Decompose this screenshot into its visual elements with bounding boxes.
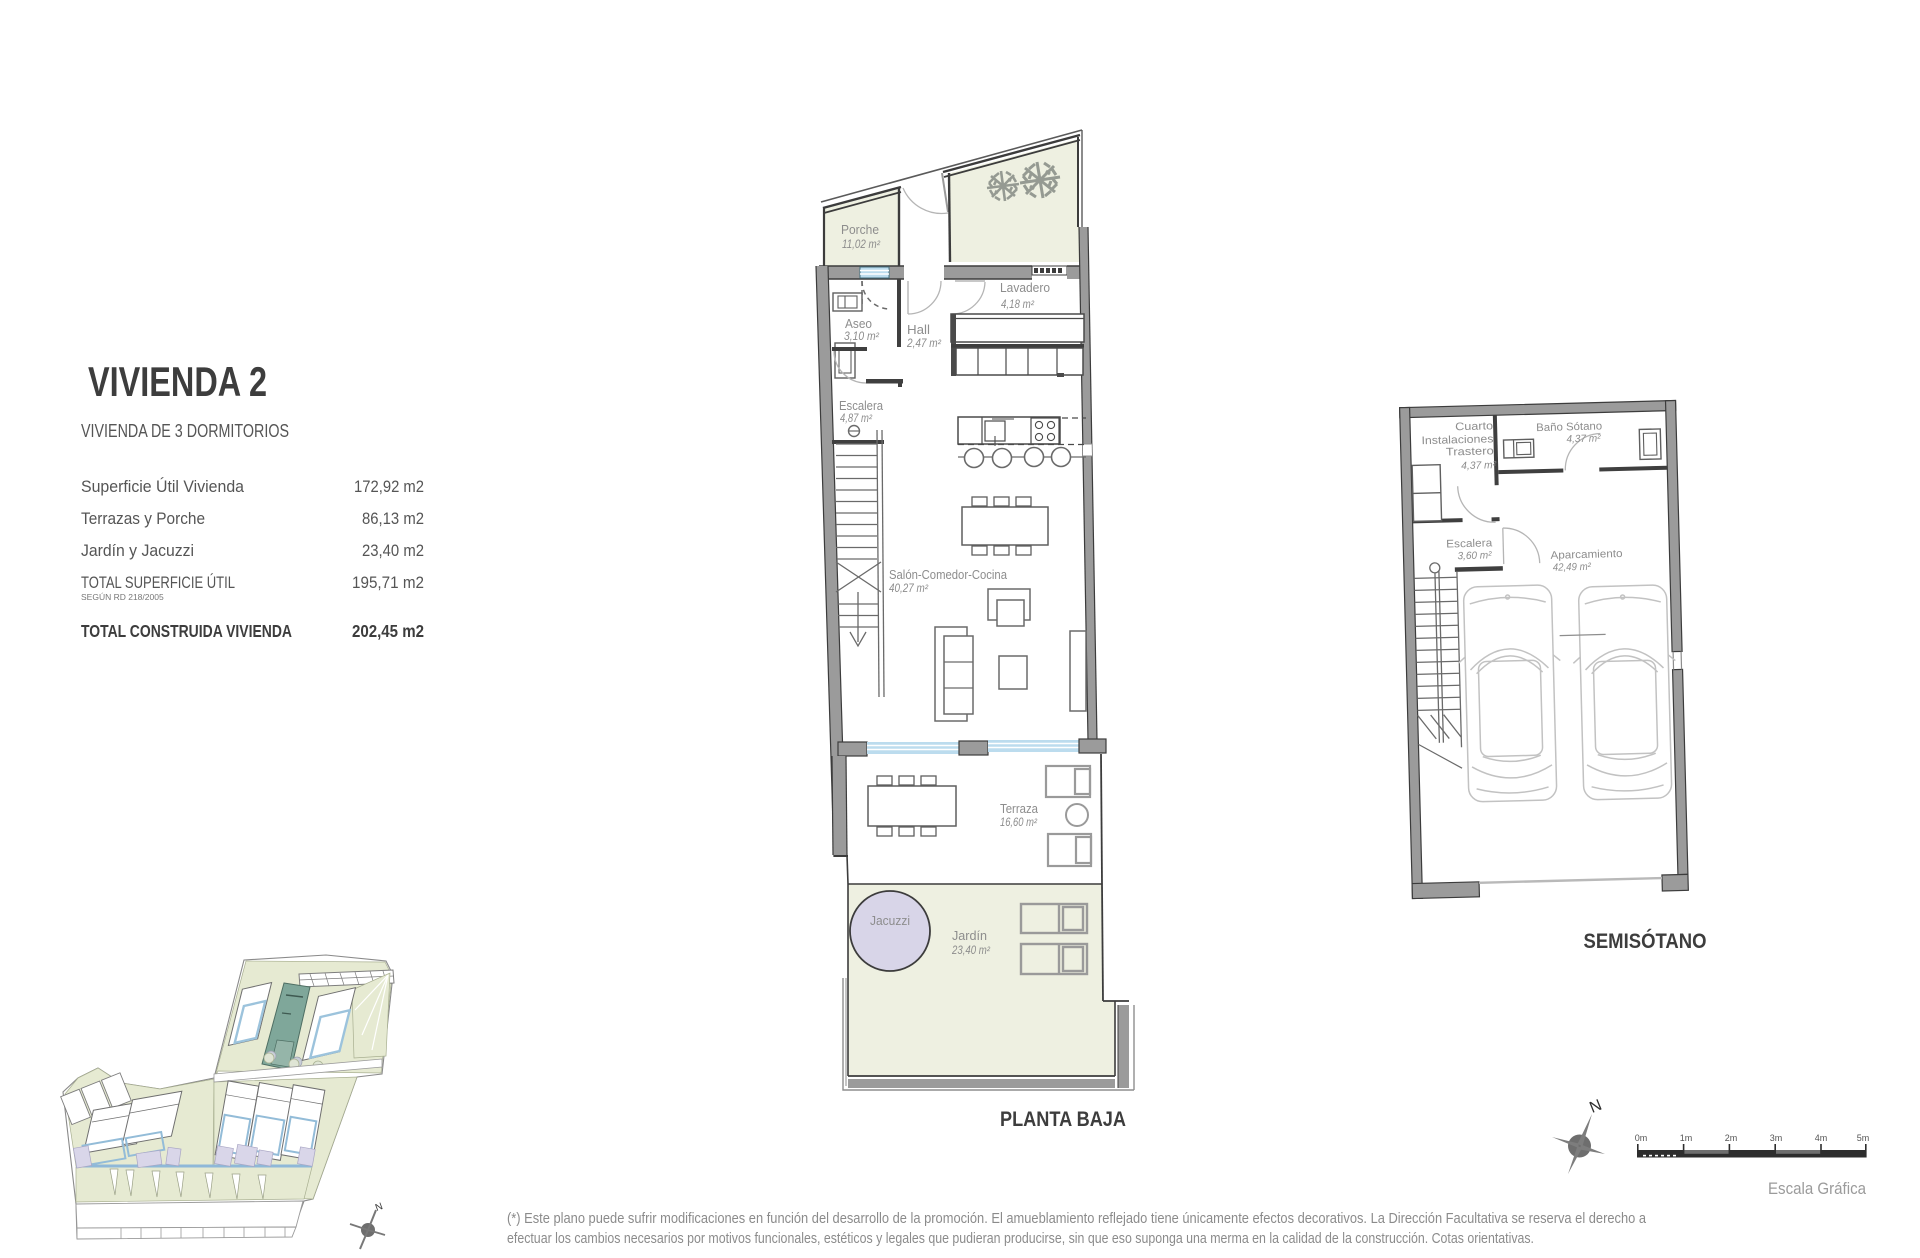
svg-text:Lavadero: Lavadero (1000, 281, 1050, 295)
svg-text:SEGÚN RD 218/2005: SEGÚN RD 218/2005 (81, 592, 164, 602)
svg-text:4,87 m²: 4,87 m² (840, 413, 873, 425)
svg-text:PLANTA BAJA: PLANTA BAJA (1000, 1108, 1126, 1131)
svg-text:Cuarto: Cuarto (1455, 420, 1493, 433)
svg-text:195,71 m2: 195,71 m2 (352, 573, 424, 592)
svg-text:11,02 m²: 11,02 m² (842, 239, 881, 251)
svg-text:3,10 m²: 3,10 m² (844, 331, 880, 343)
svg-text:86,13 m2: 86,13 m2 (362, 509, 424, 528)
svg-text:(*) Este plano puede sufrir mo: (*) Este plano puede sufrir modificacion… (507, 1210, 1647, 1227)
svg-text:Jardín: Jardín (952, 929, 987, 943)
svg-text:16,60 m²: 16,60 m² (1000, 817, 1038, 829)
svg-text:4m: 4m (1815, 1133, 1828, 1143)
svg-text:Trastero: Trastero (1446, 445, 1494, 458)
svg-text:40,27 m²: 40,27 m² (889, 583, 929, 595)
svg-text:172,92 m2: 172,92 m2 (354, 477, 424, 496)
svg-text:23,40 m2: 23,40 m2 (362, 541, 424, 560)
svg-text:TOTAL CONSTRUIDA VIVIENDA: TOTAL CONSTRUIDA VIVIENDA (81, 621, 292, 641)
svg-text:Superficie Útil Vivienda: Superficie Útil Vivienda (81, 477, 245, 496)
svg-text:5m: 5m (1857, 1133, 1870, 1143)
svg-text:0m: 0m (1635, 1133, 1648, 1143)
svg-text:VIVIENDA DE 3 DORMITORIOS: VIVIENDA DE 3 DORMITORIOS (81, 421, 289, 441)
svg-text:4,37 m²: 4,37 m² (1461, 459, 1497, 472)
svg-text:3,60 m²: 3,60 m² (1457, 549, 1492, 562)
svg-text:VIVIENDA 2: VIVIENDA 2 (88, 358, 267, 405)
svg-text:23,40 m²: 23,40 m² (951, 945, 991, 957)
svg-text:efectuar los cambios necesario: efectuar los cambios necesarios por moti… (507, 1230, 1534, 1247)
svg-text:Jacuzzi: Jacuzzi (870, 914, 910, 928)
svg-text:42,49 m²: 42,49 m² (1553, 561, 1592, 574)
svg-text:Jardín y Jacuzzi: Jardín y Jacuzzi (81, 541, 194, 560)
svg-text:Escala Gráfica: Escala Gráfica (1768, 1180, 1867, 1198)
svg-text:SEMISÓTANO: SEMISÓTANO (1584, 929, 1707, 953)
svg-text:Terrazas y Porche: Terrazas y Porche (81, 509, 205, 528)
svg-text:4,18 m²: 4,18 m² (1001, 299, 1035, 311)
svg-text:Aseo: Aseo (845, 317, 872, 331)
svg-text:Escalera: Escalera (839, 399, 883, 413)
svg-text:2,47 m²: 2,47 m² (906, 338, 942, 350)
svg-text:Salón-Comedor-Cocina: Salón-Comedor-Cocina (889, 568, 1007, 582)
svg-text:Hall: Hall (907, 323, 930, 337)
svg-text:3m: 3m (1770, 1133, 1783, 1143)
svg-text:Porche: Porche (841, 223, 879, 237)
svg-text:4,37 m²: 4,37 m² (1566, 432, 1601, 445)
svg-text:Terraza: Terraza (1000, 802, 1038, 816)
svg-text:1m: 1m (1680, 1133, 1693, 1143)
svg-text:2m: 2m (1725, 1133, 1738, 1143)
svg-text:TOTAL SUPERFICIE ÚTIL: TOTAL SUPERFICIE ÚTIL (81, 573, 235, 592)
svg-text:Aparcamiento: Aparcamiento (1550, 548, 1622, 562)
svg-text:202,45 m2: 202,45 m2 (352, 621, 424, 641)
